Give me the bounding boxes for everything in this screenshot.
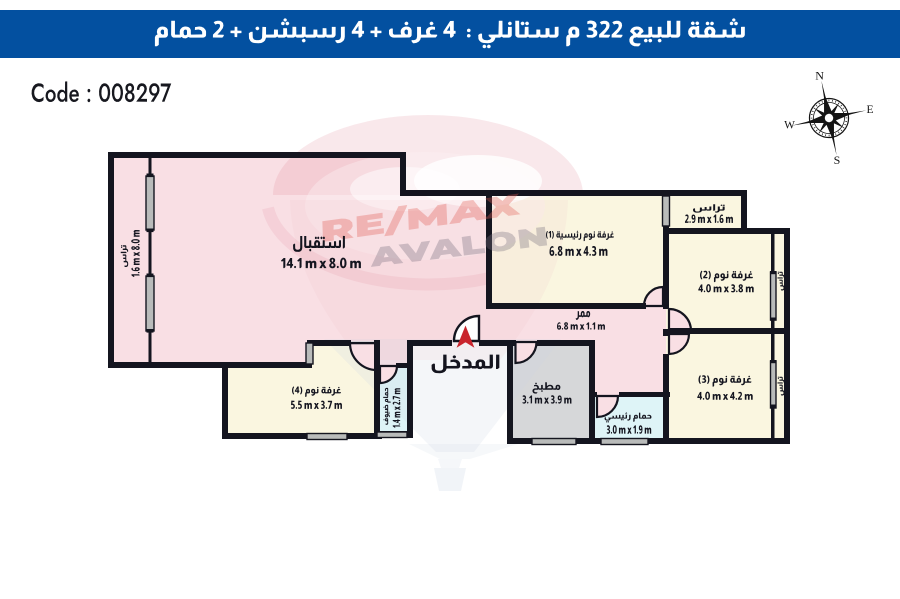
- svg-text:W: W: [784, 120, 795, 132]
- svg-text:E: E: [866, 104, 873, 116]
- svg-text:N: N: [815, 68, 824, 82]
- svg-text:S: S: [834, 153, 841, 167]
